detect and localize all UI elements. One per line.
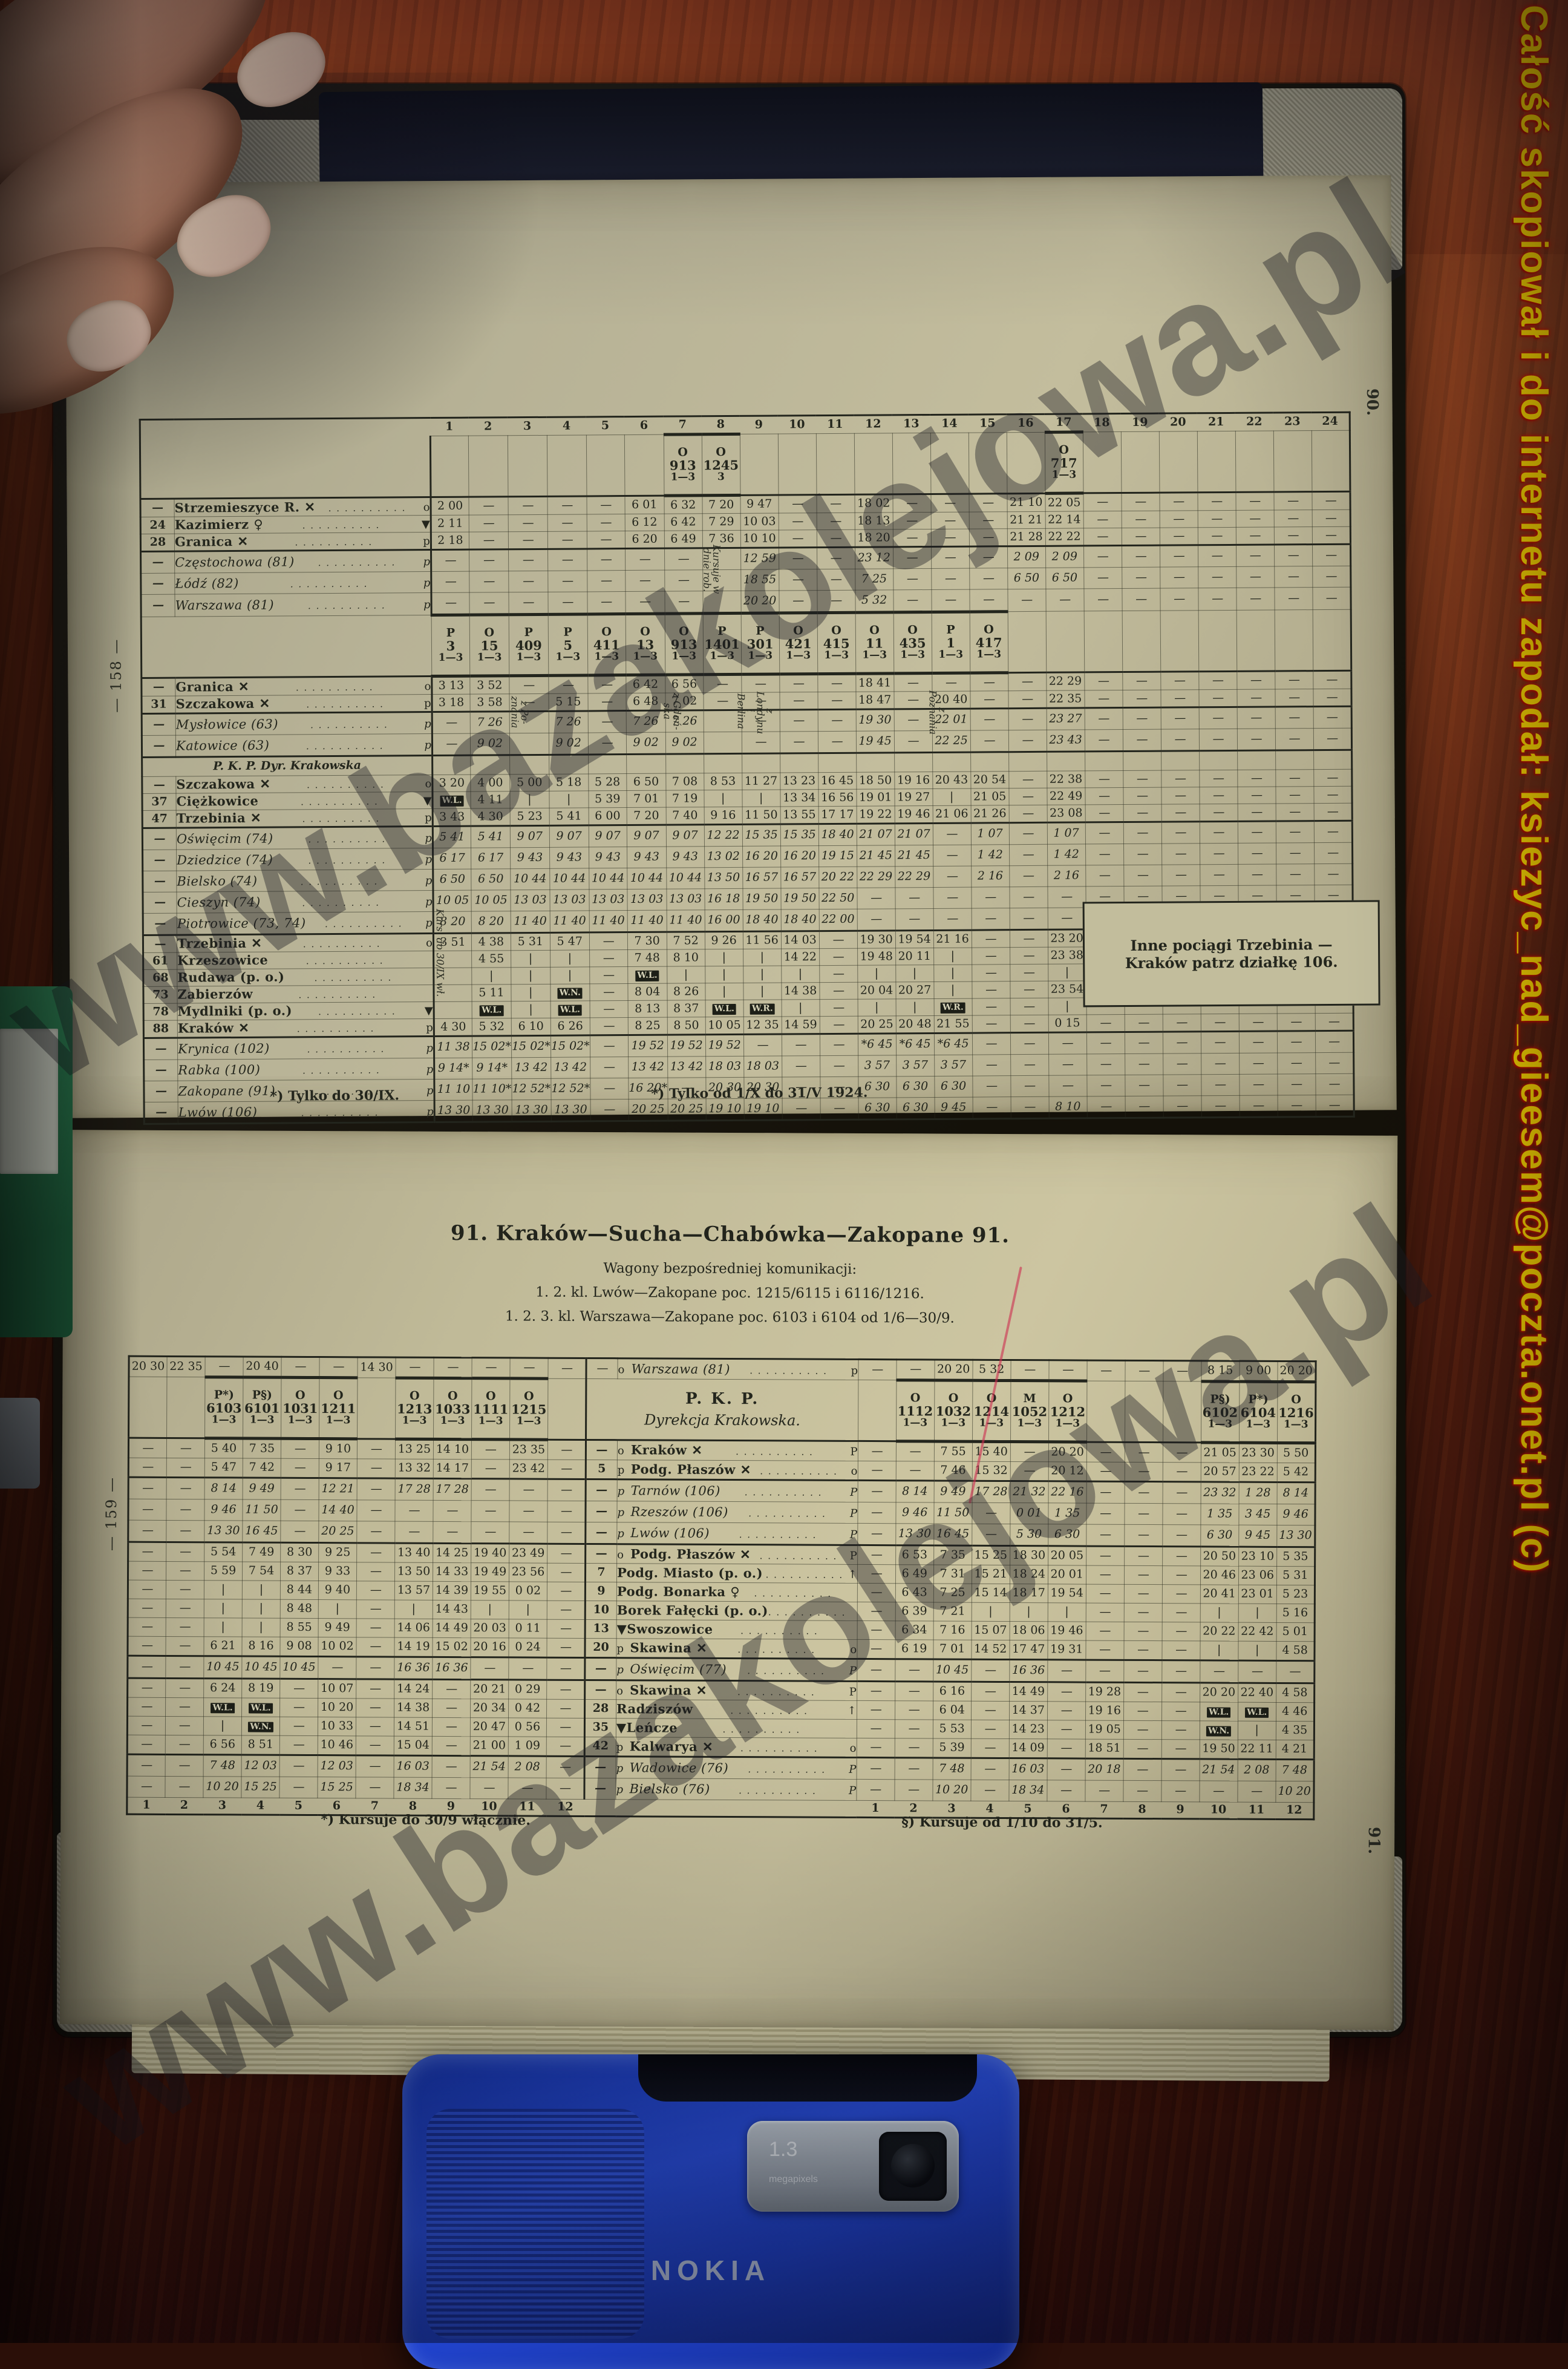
train-number-cell (1083, 432, 1122, 493)
time-cell: — (1239, 1053, 1277, 1074)
time-cell: — (1161, 729, 1199, 751)
time-cell: 6 56 (203, 1735, 241, 1755)
train-number-cell (1125, 1381, 1163, 1442)
time-cell: — (547, 1501, 586, 1522)
time-cell: 7 29 (702, 513, 740, 530)
time-cell: 14 51 (394, 1717, 432, 1736)
time-cell: — (1084, 672, 1122, 690)
time-cell: — (469, 592, 509, 615)
time-cell: — (972, 1055, 1010, 1076)
time-cell: 2 09 (1045, 546, 1083, 568)
empty-cell (626, 754, 665, 773)
km-cell: — (586, 1358, 618, 1378)
time-cell: 8 51 (241, 1735, 279, 1755)
time-cell: — (1274, 527, 1312, 545)
time-cell: 23 01 (1238, 1585, 1276, 1604)
time-cell: 1 28 (1239, 1482, 1277, 1504)
page-number-158: — 158 — (107, 638, 125, 713)
station-cell: pSkawina ✕ . . . . . . . . . . o (616, 1639, 857, 1659)
time-cell: 9 02 (470, 733, 509, 755)
time-cell: — (894, 709, 932, 730)
time-cell: 8 16 (242, 1637, 280, 1656)
time-cell: — (128, 1697, 166, 1716)
column-number: 17 (1045, 414, 1083, 432)
time-cell: 9 08 (280, 1637, 318, 1656)
time-cell: — (1086, 1622, 1124, 1640)
time-cell: 5 23 (1276, 1585, 1315, 1604)
time-cell: 14 06 (394, 1619, 433, 1637)
column-number: 1 (127, 1797, 165, 1814)
time-cell: — (508, 1778, 546, 1799)
column-number: 4 (547, 417, 586, 435)
time-cell: 3 57 (858, 1055, 896, 1076)
km-cell: — (144, 1081, 178, 1102)
train-number-cell (167, 1377, 205, 1438)
time-cell: | (972, 1602, 1010, 1621)
station-cell: Piotrowice (73, 74) . . . . . . . . . . … (177, 912, 433, 935)
time-cell: | (549, 791, 589, 808)
km-cell: — (143, 892, 177, 913)
time-cell: — (1087, 1360, 1125, 1381)
time-cell: — (469, 515, 508, 532)
time-cell: — (281, 1478, 319, 1499)
time-cell: — (969, 546, 1007, 568)
time-cell: — (1163, 1463, 1201, 1482)
time-cell: | (704, 790, 742, 807)
time-cell: 15 25 (241, 1777, 279, 1798)
time-cell: 6 12 (625, 514, 664, 531)
time-cell: — (1123, 844, 1161, 865)
time-cell: — (1010, 1462, 1048, 1481)
time-cell: — (1236, 588, 1275, 610)
empty-cell (1275, 750, 1313, 770)
time-cell: 23 49 (509, 1544, 547, 1563)
time-cell: 19 54 (895, 930, 933, 948)
time-cell: — (1086, 1481, 1125, 1503)
time-cell: — (1236, 510, 1274, 527)
km-cell: 37 (142, 793, 176, 810)
time-cell: — (858, 1441, 896, 1461)
time-cell: — (1201, 1095, 1240, 1117)
time-cell: 14 43 (433, 1600, 471, 1619)
time-cell: 7 01 (933, 1640, 972, 1659)
time-cell: — (589, 932, 627, 950)
km-cell: 24 (140, 517, 174, 534)
station-cell: pLwów (106) . . . . . . . . . . P (617, 1522, 858, 1545)
time-cell: 13 50 (704, 867, 742, 888)
time-cell: | (550, 950, 589, 967)
time-cell: — (1313, 689, 1351, 706)
time-cell: — (128, 1438, 166, 1458)
time-cell: 20 54 (970, 772, 1008, 788)
time-cell: 9 33 (318, 1562, 356, 1581)
time-cell: — (1010, 886, 1048, 908)
time-cell: 8 04 (628, 983, 667, 1000)
time-cell: 20 34 (471, 1699, 509, 1718)
time-cell: — (166, 1499, 204, 1520)
time-cell: 14 52 (972, 1640, 1010, 1659)
time-cell: — (547, 1440, 586, 1460)
time-cell: — (1200, 843, 1238, 864)
time-cell: 11 40 (589, 911, 627, 932)
time-cell: — (971, 1780, 1009, 1801)
time-cell: — (1123, 1720, 1161, 1739)
time-cell: 8 15 (1201, 1361, 1240, 1381)
time-cell: 7 19 (666, 790, 704, 807)
time-cell: 19 05 (1085, 1720, 1123, 1739)
note-box-trzebinia-krakow: Inne pociągi Trzebinia — Kraków patrz dz… (1083, 900, 1380, 1007)
time-cell: 22 50 (819, 888, 857, 909)
train-number-cell (778, 434, 817, 495)
time-cell: — (1125, 1014, 1163, 1032)
time-cell: — (969, 494, 1007, 512)
time-cell: — (1312, 544, 1350, 566)
time-cell: 11 50 (934, 1502, 972, 1524)
time-cell: — (1274, 566, 1312, 588)
time-cell: — (510, 1358, 548, 1378)
time-cell: — (1010, 998, 1048, 1015)
time-cell: — (970, 709, 1008, 730)
train-number-cell (1275, 610, 1313, 671)
time-cell: 10 44 (550, 868, 589, 890)
timetable-91: 20 3022 35—20 40——14 30——————oWarszawa (… (126, 1355, 1316, 1821)
time-cell: | (242, 1599, 280, 1618)
column-number: 14 (930, 414, 969, 433)
km-cell: 28 (140, 534, 174, 551)
time-cell: 19 46 (1048, 1622, 1086, 1640)
time-cell: 20 25 (858, 1016, 896, 1034)
time-cell: — (893, 589, 932, 612)
time-cell: 5 32 (855, 590, 893, 612)
km-cell: — (142, 828, 176, 850)
time-cell: — (1161, 707, 1199, 729)
km-cell: — (141, 573, 175, 594)
time-cell: 11 40 (511, 911, 550, 932)
train-number-cell: M10521—3 (1010, 1381, 1048, 1442)
time-cell: 14 37 (1009, 1702, 1047, 1720)
station-cell: Częstochowa (81) . . . . . . . . . . p (175, 550, 431, 574)
time-cell: — (1125, 1503, 1163, 1524)
time-cell: 19 54 (1048, 1584, 1086, 1603)
time-cell: — (547, 1460, 586, 1479)
train-number-cell (892, 433, 931, 494)
time-cell: 8 13 (628, 1000, 667, 1017)
time-cell: 11 38 (434, 1036, 472, 1058)
time-cell: 4 00 (471, 775, 510, 791)
footnote-91-right: §) Kursuje od 1/10 do 31/5. (901, 1814, 1103, 1830)
time-cell: — (1236, 527, 1274, 545)
time-cell: | (742, 790, 780, 807)
train-number-cell: O4111—3 (587, 614, 626, 675)
time-cell: — (1124, 1524, 1162, 1546)
time-cell: 6 43 (895, 1584, 933, 1602)
time-cell: 14 03 (781, 931, 819, 949)
time-cell: 7 48 (203, 1755, 241, 1777)
station-cell: oKraków ✕ . . . . . . . . . . P (617, 1440, 858, 1461)
time-cell: — (1125, 1442, 1163, 1462)
time-cell: 21 45 (895, 845, 933, 866)
time-cell: 23 22 (1239, 1463, 1277, 1482)
time-cell: | (934, 981, 972, 998)
time-cell: — (1083, 546, 1122, 568)
time-cell: 1 07 (971, 823, 1009, 845)
train-number-cell (1084, 611, 1123, 672)
time-cell: — (469, 571, 509, 592)
time-cell: — (547, 1680, 585, 1699)
time-cell: — (1198, 492, 1236, 510)
time-cell: — (972, 981, 1010, 998)
time-cell: 0 01 (1010, 1503, 1048, 1524)
time-cell: — (895, 1701, 933, 1720)
time-cell: — (1314, 842, 1352, 863)
column-number: 21 (1197, 413, 1235, 431)
time-cell: — (205, 1357, 243, 1377)
time-cell: — (1047, 1702, 1085, 1720)
time-cell: — (625, 570, 664, 591)
train-number-cell (1160, 611, 1199, 672)
time-cell: 20 20 (1278, 1361, 1316, 1381)
train-number-cell (854, 433, 893, 494)
column-number: 8 (1123, 1801, 1161, 1818)
time-cell: — (969, 568, 1007, 589)
time-cell: 12 03 (241, 1755, 279, 1777)
empty-cell (1047, 752, 1085, 771)
time-cell: 7 35 (243, 1438, 281, 1458)
time-cell: 20 46 (1200, 1566, 1238, 1585)
time-cell: — (1163, 1096, 1201, 1118)
time-cell: 8 30 (281, 1542, 319, 1562)
time-cell: 9 02 (626, 732, 665, 754)
time-cell: — (587, 571, 625, 592)
time-cell: 13 30 (204, 1521, 243, 1542)
train-number-cell (1198, 610, 1237, 671)
time-cell: 10 33 (318, 1717, 356, 1736)
time-cell: — (1047, 1758, 1085, 1780)
time-cell: — (279, 1735, 318, 1755)
time-cell: 17 17 (818, 806, 857, 824)
time-cell: — (166, 1617, 204, 1636)
time-cell: 13 23 (780, 773, 818, 790)
camera-megapixel-number: 1.3 (769, 2138, 797, 2161)
km-cell: — (143, 935, 177, 952)
time-cell: 20 47 (470, 1718, 508, 1737)
time-cell: — (509, 1479, 547, 1501)
station-cell: pKalwarya ✕ . . . . . . . . . . o (616, 1737, 857, 1758)
train-number-cell (129, 1377, 167, 1438)
time-cell: 22 22 (1045, 528, 1083, 546)
time-cell: 9 10 (319, 1439, 357, 1459)
time-cell: 15 25 (318, 1777, 356, 1798)
time-cell: — (1010, 964, 1048, 981)
time-cell: — (431, 592, 469, 615)
time-cell: — (590, 1078, 629, 1099)
time-cell: 6 39 (895, 1602, 933, 1621)
time-cell: — (547, 1479, 586, 1501)
time-cell: 20 22 (818, 867, 857, 888)
time-cell: — (895, 1659, 933, 1682)
time-cell: 9 16 (704, 807, 742, 824)
empty-cell (1161, 751, 1199, 770)
time-cell: 2 09 (1007, 546, 1045, 568)
time-cell: 22 29 (895, 866, 933, 887)
train-number-cell: O11121—3 (896, 1380, 934, 1441)
train-number-cell (1046, 611, 1085, 672)
time-cell: | (705, 949, 743, 966)
time-cell: 16 00 (705, 909, 743, 931)
time-cell: — (894, 691, 932, 709)
time-cell: — (128, 1580, 166, 1599)
time-cell: 19 01 (857, 789, 895, 806)
time-cell: 9 46 (1277, 1504, 1315, 1525)
time-cell: 6 42 (626, 675, 665, 693)
time-cell: 20 04 (858, 982, 896, 999)
page-number-159: — 159 — (103, 1476, 120, 1551)
time-cell: 9 46 (204, 1499, 243, 1521)
time-cell: 19 28 (1085, 1682, 1123, 1702)
time-cell: — (1160, 588, 1198, 611)
time-cell: — (1277, 1014, 1315, 1031)
time-cell: 23 32 (1201, 1482, 1239, 1504)
time-cell: — (1200, 1660, 1238, 1683)
time-cell: — (1198, 510, 1236, 527)
time-cell: — (1200, 864, 1238, 885)
time-cell: — (128, 1477, 166, 1499)
time-cell: 18 51 (1085, 1739, 1123, 1758)
time-cell: 19 10 (744, 1098, 782, 1120)
empty-cell (818, 753, 856, 772)
time-cell: — (1237, 689, 1275, 707)
time-cell: 23 08 (1047, 805, 1085, 822)
time-cell: — (469, 532, 508, 549)
km-cell: 68 (143, 969, 177, 986)
time-cell: 21 07 (857, 824, 895, 845)
time-cell: 16 20 (780, 846, 818, 867)
time-cell: — (588, 675, 626, 693)
time-cell: — (818, 731, 856, 753)
time-cell: — (1201, 1053, 1239, 1074)
time-cell: — (1086, 1546, 1124, 1565)
time-cell: 11 56 (743, 931, 781, 949)
station-cell: Mydlniki (p. o.) . . . . . . . . . . ▼ (177, 1002, 434, 1021)
time-cell: 22 40 (1238, 1683, 1276, 1702)
time-cell: — (433, 1500, 471, 1521)
time-cell: — (509, 1657, 547, 1680)
time-cell: — (166, 1599, 204, 1617)
time-cell: — (587, 592, 626, 614)
time-cell: — (857, 1779, 895, 1800)
time-cell: 21 05 (971, 788, 1009, 805)
time-cell: 17 28 (433, 1478, 471, 1500)
time-cell: 10 45 (933, 1659, 971, 1682)
time-cell: 8 53 (704, 773, 742, 790)
train-number-cell: O151—3 (469, 615, 509, 676)
train-number-cell (1273, 431, 1312, 492)
time-cell: 9 46 (896, 1502, 934, 1524)
train-number-cell: O7171—3 (1045, 432, 1083, 493)
time-cell: — (280, 1679, 318, 1698)
time-cell: — (1163, 1443, 1201, 1463)
grey-object-edge (0, 1398, 40, 1489)
time-cell: — (1238, 804, 1276, 821)
time-cell: — (470, 1778, 508, 1799)
time-cell: 3 52 (470, 676, 509, 694)
time-cell: — (972, 965, 1010, 981)
time-cell: 5 41 (471, 826, 510, 848)
time-cell: — (1240, 1095, 1278, 1117)
train-number-cell: O12111—3 (319, 1378, 358, 1439)
time-cell: 10 20 (203, 1777, 241, 1798)
time-cell: 13 42 (512, 1057, 551, 1078)
empty-cell (1199, 750, 1237, 770)
time-cell: 2 08 (1238, 1759, 1276, 1781)
column-number: 9 (740, 416, 778, 434)
time-cell: 5 53 (933, 1720, 971, 1738)
time-cell: — (896, 1461, 934, 1481)
time-cell: — (972, 930, 1010, 948)
empty-cell (932, 752, 970, 772)
time-cell: — (1086, 1565, 1124, 1584)
time-cell: — (1125, 1462, 1163, 1481)
time-cell: 23 12 (855, 547, 893, 569)
time-cell (509, 733, 549, 755)
time-cell: — (357, 1543, 395, 1562)
time-cell: | (1048, 964, 1086, 981)
km-cell: 42 (584, 1737, 616, 1756)
time-cell: — (279, 1755, 318, 1777)
time-cell: — (1125, 1032, 1163, 1053)
time-cell: 19 50 (781, 888, 819, 909)
time-cell: 20 20 (935, 1360, 973, 1380)
time-cell: 14 10 (433, 1439, 471, 1459)
time-cell: — (857, 1583, 895, 1602)
time-cell: — (1086, 1462, 1125, 1481)
time-cell: — (1236, 492, 1274, 510)
empty-cell (1313, 750, 1351, 769)
empty-cell (665, 754, 704, 773)
time-cell: — (1163, 1361, 1201, 1381)
time-cell: — (665, 591, 703, 614)
time-cell: — (1275, 729, 1313, 750)
time-cell: — (432, 733, 470, 755)
time-cell: — (857, 888, 895, 909)
column-number: 15 (969, 414, 1007, 433)
station-cell: Krzeszowice . . . . . . . . . . (177, 951, 434, 970)
station-cell: Kazimierz ♀ . . . . . . . . . . ▼ (174, 516, 431, 534)
phone-camera-module: 1.3 megapixels (747, 2121, 959, 2212)
time-cell: 7 52 (667, 932, 705, 949)
time-cell: — (1276, 821, 1314, 843)
time-cell: 10 45 (280, 1656, 318, 1679)
table-row: P*)61031—3P§)61011—3O10311—3O12111—3O121… (129, 1377, 1316, 1443)
km-cell: — (141, 594, 175, 617)
time-cell: — (820, 1016, 858, 1034)
time-cell: 20 25 (629, 1099, 668, 1121)
train-number-cell (1007, 432, 1045, 493)
time-cell: 5 35 (1276, 1547, 1315, 1566)
train-number-cell: O9131—3 (665, 614, 704, 675)
time-cell: — (166, 1477, 204, 1499)
time-cell: — (1008, 690, 1047, 708)
time-cell: — (1123, 865, 1161, 886)
time-cell: — (742, 732, 780, 753)
time-cell: 5 15 (549, 693, 588, 711)
time-cell: W.L. (472, 1001, 511, 1018)
train-number-cell: O4171—3 (970, 612, 1008, 673)
time-cell: 6 00 (589, 808, 627, 825)
time-cell: 9 49 (318, 1619, 356, 1637)
time-cell: — (1008, 589, 1046, 611)
time-cell: 10 20 (318, 1699, 356, 1717)
